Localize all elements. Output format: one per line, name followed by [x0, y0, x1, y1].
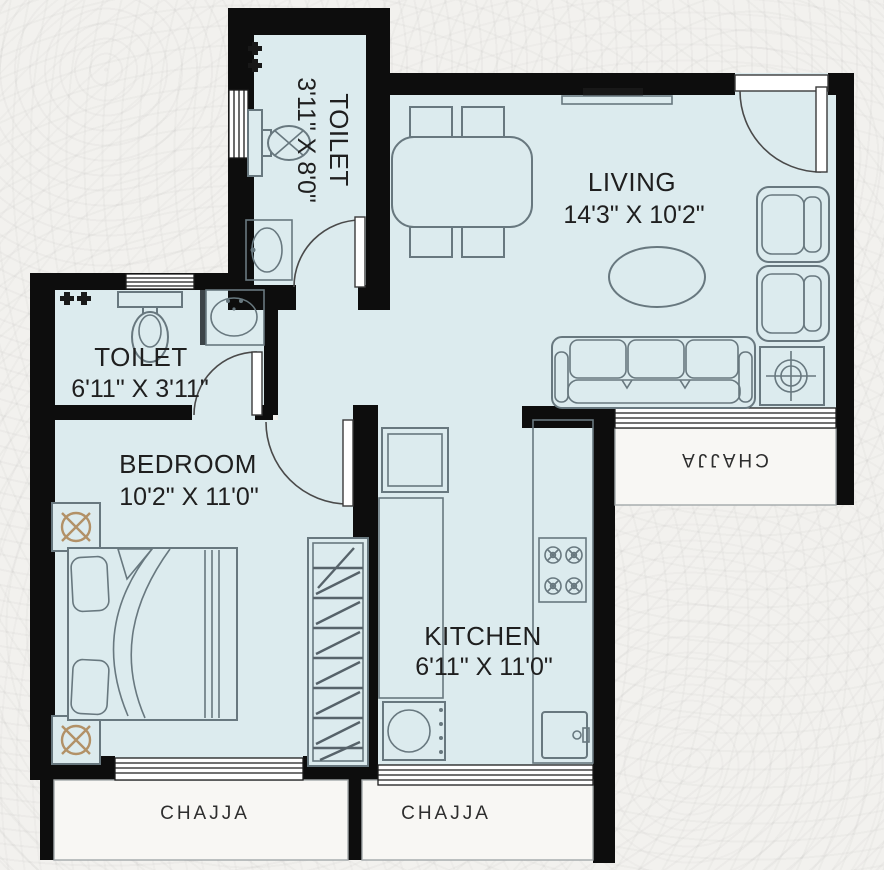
wardrobe [308, 538, 368, 766]
room-dims-bedroom: 10'2" X 11'0" [119, 483, 258, 511]
wall-segment [366, 8, 390, 290]
dining-chair [462, 107, 504, 137]
chajja-label-bedroom: CHAJJA [160, 803, 250, 824]
room-dims-toilet-mid: 6'11" X 3'11" [71, 375, 209, 403]
window-bathroom-top [126, 274, 194, 289]
room-label-toilet-top: TOILET [324, 93, 354, 187]
wall-segment [40, 780, 54, 860]
window-bedroom-bottom [115, 758, 303, 780]
fridge-icon [542, 712, 589, 758]
window-toilet-top-left [229, 90, 248, 158]
dining-chair [410, 227, 452, 257]
floorplan-drawing: TOILET 3'11" X 8'0" LIVING 14'3" X 10'2"… [0, 0, 884, 870]
double-bed [68, 548, 237, 720]
room-label-toilet-mid: TOILET [94, 342, 188, 372]
armchair [757, 187, 829, 262]
center-table [609, 247, 705, 307]
room-label-living: LIVING [588, 167, 676, 197]
wall-segment [836, 73, 854, 505]
dining-chair [462, 227, 504, 257]
side-table-planter [52, 503, 100, 551]
room-dims-living: 14'3" X 10'2" [563, 201, 704, 229]
dining-chair [410, 107, 452, 137]
window-living-bottom [615, 408, 836, 428]
sofa [552, 337, 755, 408]
wall-segment [390, 73, 735, 95]
room-dims-kitchen: 6'11" X 11'0" [415, 653, 553, 681]
side-table-planter [52, 716, 100, 764]
room-dims-toilet-top: 3'11" X 8'0" [292, 77, 320, 203]
window-kitchen-bottom [378, 765, 593, 785]
chajja-label-kitchen: CHAJJA [401, 803, 491, 824]
wall-segment [30, 405, 192, 420]
wall-partition-basin [200, 290, 206, 345]
floor-passage [278, 305, 390, 420]
sink-platform [382, 428, 448, 492]
room-label-bedroom: BEDROOM [119, 449, 257, 479]
wall-segment [593, 418, 615, 863]
floor-kitchen-doorway [390, 406, 530, 422]
chajja-label-living: CHAJJA [679, 449, 769, 470]
wall-segment [348, 780, 362, 860]
floor-bath-doorway [192, 405, 257, 420]
dining-table [392, 137, 532, 227]
armchair [757, 266, 829, 341]
room-label-kitchen: KITCHEN [424, 621, 542, 651]
washing-unit-icon [383, 702, 445, 760]
corner-table [760, 347, 824, 405]
wall-segment [358, 285, 390, 310]
wall-segment [264, 285, 278, 415]
floorplan-canvas: TOILET 3'11" X 8'0" LIVING 14'3" X 10'2"… [0, 0, 884, 870]
